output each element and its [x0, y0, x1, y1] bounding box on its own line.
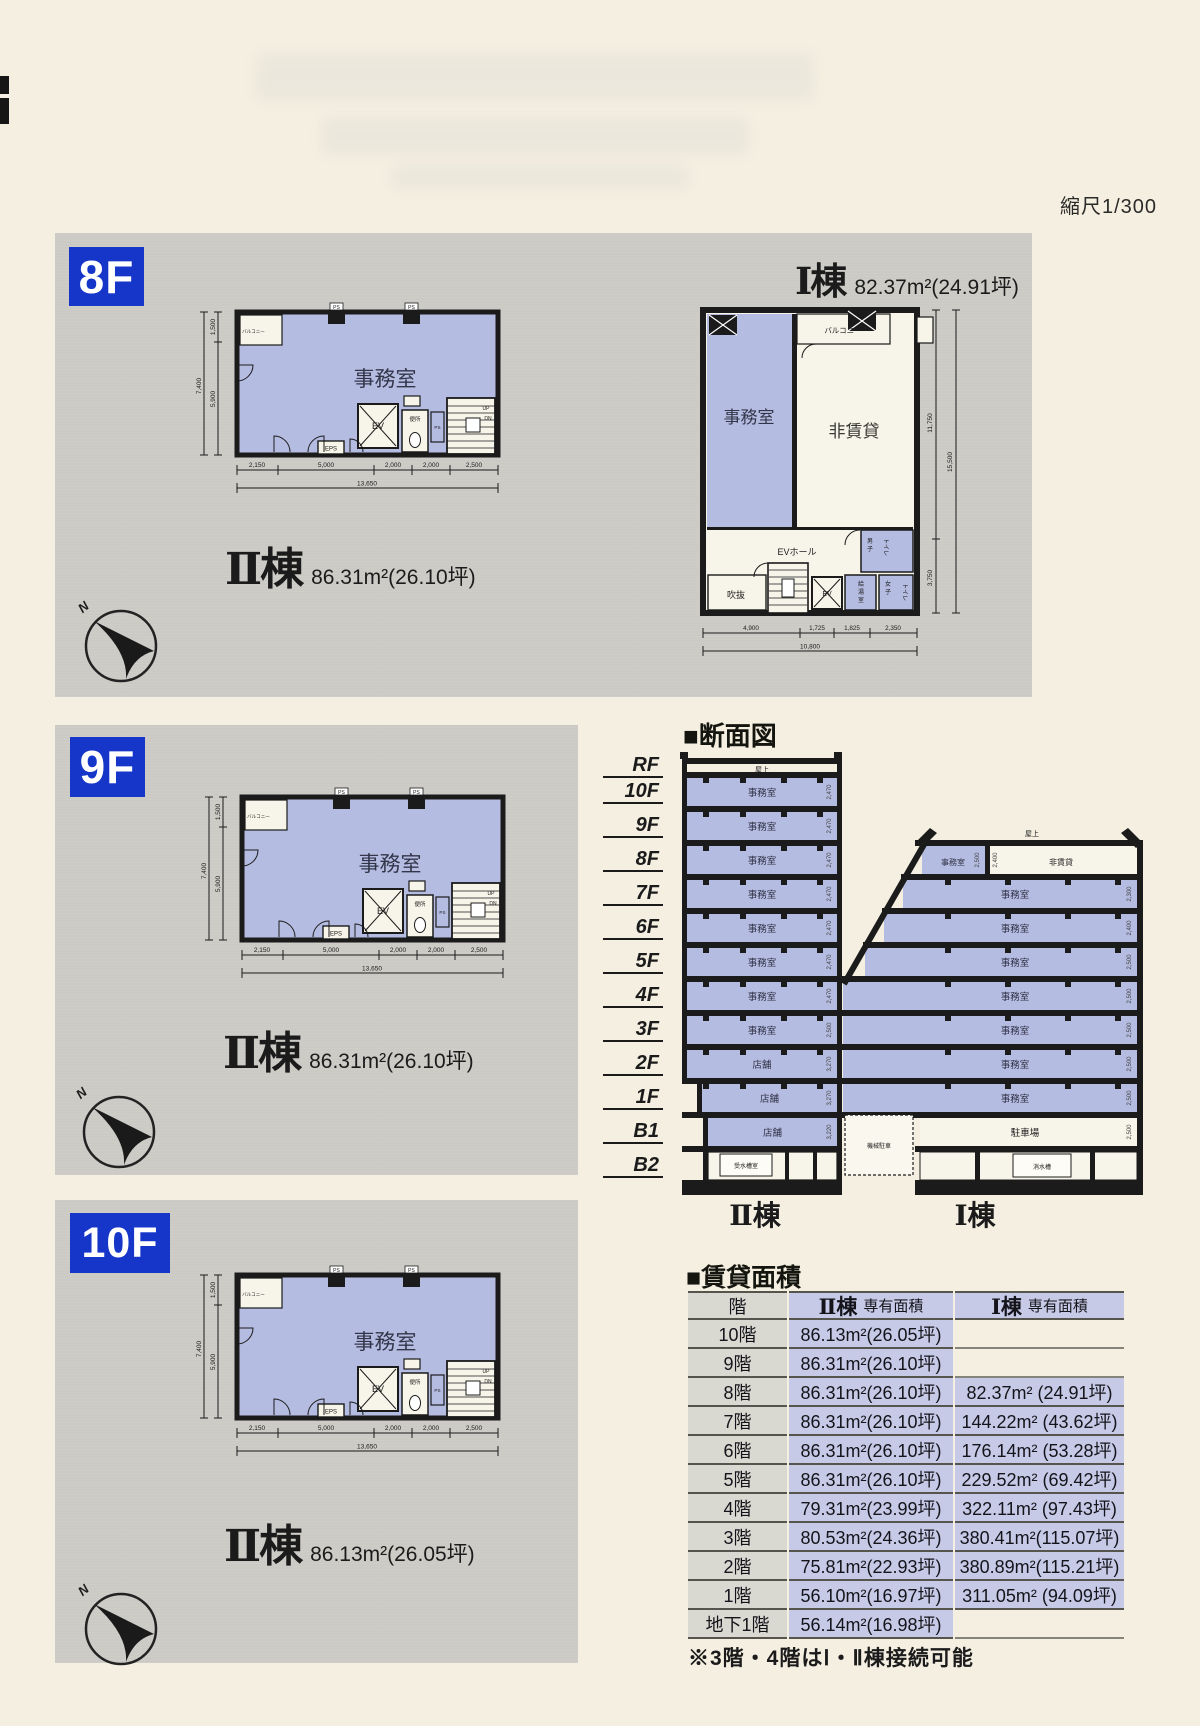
section-floor-label: 2F — [635, 1052, 660, 1074]
building2-caption-9f: Ⅱ棟 86.31m²(26.10坪) — [223, 1017, 474, 1081]
row-floor: 7階 — [688, 1407, 787, 1436]
section-floor-label: 5F — [636, 950, 660, 972]
row-building2-area: 86.13m²(26.05坪) — [789, 1320, 953, 1349]
floor-height: 3,220 — [827, 1124, 833, 1140]
room-label: 事務室 — [1001, 923, 1030, 935]
room-label: 非賃貸 — [1049, 857, 1073, 867]
toilet-label: 便所 — [409, 415, 421, 423]
section-floor-label: B1 — [633, 1120, 659, 1142]
dim-v-upper: 1,500 — [215, 803, 222, 820]
floor-height: 2,470 — [827, 784, 833, 800]
row-building2-area: 86.31m²(26.10坪) — [789, 1349, 953, 1378]
room-label: 店舗 — [763, 1127, 783, 1139]
ev-hall-label: EVホール — [777, 547, 816, 557]
row-floor: 9階 — [688, 1349, 787, 1378]
north-label: N — [75, 598, 92, 616]
floor-height: 2,400 — [1127, 920, 1133, 936]
row-building2-area: 80.53m²(24.36坪) — [789, 1523, 953, 1552]
womens-toilet-label: トイレ — [901, 583, 907, 601]
room-label: 事務室 — [748, 889, 777, 901]
dim-v-total: 7,400 — [201, 862, 208, 879]
row-building2-area: 75.81m²(22.93坪) — [789, 1552, 953, 1581]
building2-plan-9f: バルコニーPSPS事務室EV便所PSUPDNEPS7,4001,5005,900… — [195, 787, 515, 992]
mens-toilet-label: トイレ — [882, 538, 888, 556]
floor-height: 2,500 — [1127, 1090, 1133, 1106]
section-floor-label: 1F — [636, 1086, 660, 1108]
rent-table-row: 7階 86.31m²(26.10坪) 144.22m² (43.62坪) — [688, 1407, 1124, 1436]
rent-table-row: 9階 86.31m²(26.10坪) — [688, 1349, 1124, 1378]
row-floor: 3階 — [688, 1523, 787, 1552]
row-building1-area: 380.41m²(115.07坪) — [955, 1523, 1124, 1552]
room-label: 事務室 — [1001, 889, 1030, 901]
ps-label: PS — [333, 305, 340, 311]
section-floor-label: 9F — [636, 814, 660, 836]
room-label: 事務室 — [748, 821, 777, 833]
svg-text:子: 子 — [885, 589, 891, 596]
dim-h: 2,000 — [428, 947, 445, 954]
up-label: UP — [488, 891, 496, 897]
building-name: Ⅱ棟 — [225, 533, 302, 597]
cross-section-svg: 事務室2,470事務室2,470事務室2,470事務室2,470事務室2,470… — [585, 745, 1165, 1245]
row-floor: 2階 — [688, 1552, 787, 1581]
dim-h: 2,500 — [466, 462, 483, 469]
north-label: N — [73, 1084, 90, 1102]
print-bleedthrough — [320, 116, 750, 156]
ev-label: EV — [822, 591, 832, 598]
building2-plan-8f: バルコニーPSPS事務室EV便所PSUPDNEPS7,4001,5005,900… — [190, 302, 510, 507]
office-label: 事務室 — [724, 408, 775, 427]
floor-height: 2,500 — [1127, 1124, 1133, 1140]
dim-h: 2,150 — [249, 1425, 266, 1432]
machine-parking-label: 機械駐車 — [867, 1142, 891, 1150]
up-label: UP — [483, 1369, 491, 1375]
floor-tag-9f: 9F — [70, 737, 145, 797]
row-building1-area — [955, 1610, 1124, 1639]
building2-floor-plan: バルコニーPSPS事務室EV便所PSUPDNEPS7,4001,5005,900… — [190, 302, 510, 502]
floor-height: 2,300 — [1127, 886, 1133, 902]
floor-height: 2,470 — [827, 988, 833, 1004]
rent-table-row: 8階 86.31m²(26.10坪) 82.37m² (24.91坪) — [688, 1378, 1124, 1407]
cross-section-diagram: 事務室2,470事務室2,470事務室2,470事務室2,470事務室2,470… — [585, 745, 1165, 1245]
floor-height: 2,470 — [827, 818, 833, 834]
row-floor: 地下1階 — [688, 1610, 787, 1639]
row-floor: 5階 — [688, 1465, 787, 1494]
rent-table-row: 5階 86.31m²(26.10坪) 229.52m² (69.42坪) — [688, 1465, 1124, 1494]
rent-area-table: 階 Ⅱ棟専有面積 Ⅰ棟専有面積 10階 86.13m²(26.05坪) 9階 8… — [688, 1291, 1124, 1639]
row-floor: 8階 — [688, 1378, 787, 1407]
dim-h: 2,350 — [885, 625, 901, 632]
room-label: 事務室 — [1001, 991, 1030, 1003]
rent-table-row: 10階 86.13m²(26.05坪) — [688, 1320, 1124, 1349]
dim-h: 2,150 — [254, 947, 271, 954]
office-label: 事務室 — [354, 368, 417, 391]
row-building1-area: 229.52m² (69.42坪) — [955, 1465, 1124, 1494]
section-floor-label: 10F — [625, 780, 660, 802]
dim-h-total: 13,650 — [357, 1444, 377, 1451]
room-label: 事務室 — [1001, 957, 1030, 969]
building2-plan-10f: バルコニーPSPS事務室EV便所PSUPDNEPS7,4001,5005,900… — [190, 1265, 510, 1470]
up-label: UP — [483, 406, 491, 412]
balcony-label: バルコニー — [824, 326, 861, 335]
dim-h: 5,000 — [318, 462, 335, 469]
north-compass: N — [75, 595, 163, 689]
ps-label: PS — [333, 1268, 340, 1274]
row-floor: 10階 — [688, 1320, 787, 1349]
non-rental-label: 非賃貸 — [829, 422, 880, 441]
dim-v-upper: 1,500 — [210, 318, 217, 335]
rooftop-label: 屋上 — [755, 765, 769, 774]
balcony-label: バルコニー — [242, 1292, 265, 1297]
dim-v-total: 15,500 — [947, 452, 954, 472]
room-label: 店舗 — [752, 1059, 772, 1071]
floor-height: 2,470 — [827, 852, 833, 868]
section-floor-label: 6F — [636, 916, 660, 938]
ps-label: PS — [439, 910, 445, 915]
dim-v-total: 7,400 — [196, 1340, 203, 1357]
dim-v-lower: 5,900 — [210, 390, 217, 407]
dim-v-upper: 11,750 — [927, 413, 934, 433]
rent-table-row: 地下1階 56.14m²(16.98坪) — [688, 1610, 1124, 1639]
room-label: 事務室 — [748, 957, 777, 969]
balcony-label: バルコニー — [242, 329, 265, 334]
floor-panel-10f: 10F バルコニーPSPS事務室EV便所PSUPDNEPS7,4001,5005… — [55, 1200, 578, 1663]
ev-label: EV — [377, 906, 389, 916]
compass-9f: N — [73, 1081, 161, 1180]
dim-h: 1,725 — [809, 625, 825, 632]
dim-h: 2,150 — [249, 462, 266, 469]
row-building1-area: 176.14m² (53.28坪) — [955, 1436, 1124, 1465]
row-building2-area: 56.10m²(16.97坪) — [789, 1581, 953, 1610]
dim-h-total: 13,650 — [362, 966, 382, 973]
balcony-label: バルコニー — [247, 814, 270, 819]
ps-label: PS — [408, 305, 415, 311]
ev-label: EV — [372, 421, 384, 431]
toilet-label: 便所 — [414, 900, 426, 908]
eps-label: EPS — [330, 932, 342, 938]
room-label: 事務室 — [748, 787, 777, 799]
dn-label: DN — [484, 416, 492, 422]
row-building2-area: 79.31m²(23.99坪) — [789, 1494, 953, 1523]
ps-label: PS — [434, 425, 440, 430]
room-label: 事務室 — [748, 923, 777, 935]
ps-label: PS — [434, 1388, 440, 1393]
room-label: 事務室 — [748, 991, 777, 1003]
rent-table-row: 6階 86.31m²(26.10坪) 176.14m² (53.28坪) — [688, 1436, 1124, 1465]
building2-floor-plan: バルコニーPSPS事務室EV便所PSUPDNEPS7,4001,5005,900… — [190, 1265, 510, 1465]
floor-height: 2,500 — [1127, 954, 1133, 970]
row-floor: 6階 — [688, 1436, 787, 1465]
svg-text:男: 男 — [867, 538, 873, 545]
row-building1-area: 322.11m² (97.43坪) — [955, 1494, 1124, 1523]
compass-8f: N — [75, 595, 163, 694]
rent-table-row: 4階 79.31m²(23.99坪) 322.11m² (97.43坪) — [688, 1494, 1124, 1523]
room-label: 事務室 — [1001, 1059, 1030, 1071]
floor-tag-8f: 8F — [69, 247, 144, 306]
dim-h-total: 13,650 — [357, 481, 377, 488]
dn-label: DN — [489, 901, 497, 907]
floor-height: 2,500 — [1127, 1056, 1133, 1072]
rooftop-label: 屋上 — [1025, 829, 1039, 838]
dim-h: 2,000 — [385, 462, 402, 469]
floor-height: 3,270 — [827, 1056, 833, 1072]
floor-height: 3,270 — [827, 1090, 833, 1106]
row-building1-area: 311.05m² (94.09坪) — [955, 1581, 1124, 1610]
section-floor-label: 4F — [635, 984, 660, 1006]
row-floor: 4階 — [688, 1494, 787, 1523]
rent-table-row: 1階 56.10m²(16.97坪) 311.05m² (94.09坪) — [688, 1581, 1124, 1610]
floor-height: 2,500 — [1127, 988, 1133, 1004]
section-floor-label: B2 — [633, 1154, 659, 1176]
row-building1-area: 82.37m² (24.91坪) — [955, 1378, 1124, 1407]
room-label: 受水槽室 — [734, 1162, 758, 1170]
building2-label: Ⅱ棟 — [729, 1199, 782, 1232]
building2-caption-10f: Ⅱ棟 86.13m²(26.05坪) — [224, 1510, 475, 1574]
row-building2-area: 86.31m²(26.10坪) — [789, 1407, 953, 1436]
north-compass: N — [75, 1578, 163, 1672]
floor-panel-8f: 8F バルコニーPSPS事務室EV便所PSUPDNEPS7,4001,5005,… — [55, 233, 1032, 697]
rent-table-row: 2階 75.81m²(22.93坪) 380.89m²(115.21坪) — [688, 1552, 1124, 1581]
svg-text:湯: 湯 — [858, 588, 864, 596]
page-edge-mark — [0, 98, 9, 124]
dim-h: 2,500 — [466, 1425, 483, 1432]
row-building2-area: 86.31m²(26.10坪) — [789, 1378, 953, 1407]
page-edge-mark — [0, 76, 9, 94]
dim-v-lower: 3,750 — [927, 569, 934, 586]
dim-v-lower: 5,900 — [215, 875, 222, 892]
dim-v-upper: 1,500 — [210, 1281, 217, 1298]
floor-height: 2,470 — [827, 920, 833, 936]
section-floor-label: 3F — [636, 1018, 660, 1040]
section-floor-label: 8F — [636, 848, 660, 870]
room-label: 消水槽 — [1033, 1163, 1051, 1171]
svg-text:子: 子 — [867, 546, 873, 553]
building1-floor-plan: バルコニー事務室非賃貸男子トイレEVホール吹抜EV給湯室女子トイレ11,7503… — [630, 295, 990, 665]
dim-h: 2,000 — [385, 1425, 402, 1432]
room-label: 事務室 — [941, 857, 965, 867]
room-label: 事務室 — [1001, 1093, 1030, 1105]
building2-caption-8f: Ⅱ棟 86.31m²(26.10坪) — [225, 533, 476, 597]
building1-plan-8f: バルコニー事務室非賃貸男子トイレEVホール吹抜EV給湯室女子トイレ11,7503… — [630, 295, 990, 670]
building2-floor-plan: バルコニーPSPS事務室EV便所PSUPDNEPS7,4001,5005,900… — [195, 787, 515, 987]
room-label: 店舗 — [760, 1093, 780, 1105]
ps-label: PS — [408, 1268, 415, 1274]
row-building1-area: 144.22m² (43.62坪) — [955, 1407, 1124, 1436]
rent-table-header: 階 Ⅱ棟専有面積 Ⅰ棟専有面積 — [688, 1291, 1124, 1320]
col-floor: 階 — [688, 1291, 787, 1320]
floor-panel-9f: 9F バルコニーPSPS事務室EV便所PSUPDNEPS7,4001,5005,… — [55, 725, 578, 1175]
room-label: 事務室 — [748, 1025, 777, 1037]
row-building2-area: 86.31m²(26.10坪) — [789, 1465, 953, 1494]
room-label: 事務室 — [1001, 1025, 1030, 1037]
floor-height: 2,500 — [1127, 1022, 1133, 1038]
dn-label: DN — [484, 1379, 492, 1385]
building-area: 86.31m²(26.10坪) — [311, 561, 476, 591]
svg-text:室: 室 — [858, 596, 864, 604]
col-building1: Ⅰ棟専有面積 — [955, 1291, 1124, 1320]
dim-h: 2,000 — [423, 462, 440, 469]
building1-label: Ⅰ棟 — [954, 1199, 996, 1232]
row-building1-area — [955, 1349, 1124, 1378]
dim-h: 2,000 — [390, 947, 407, 954]
brochure-page: 縮尺1/300 8F バルコニーPSPS事務室EV便所PSUPDNEPS7,40… — [0, 0, 1200, 1726]
north-compass: N — [73, 1081, 161, 1175]
dim-h: 4,900 — [743, 625, 759, 632]
ps-label: PS — [413, 790, 420, 796]
section-floor-label: RF — [632, 754, 659, 776]
rent-area-title: ■賃貸面積 — [686, 1258, 801, 1294]
col-building2: Ⅱ棟専有面積 — [789, 1291, 953, 1320]
dim-v-lower: 5,900 — [210, 1353, 217, 1370]
dim-h-total: 10,800 — [800, 644, 820, 651]
row-floor: 1階 — [688, 1581, 787, 1610]
dim-v-total: 7,400 — [196, 377, 203, 394]
section-floor-label: 7F — [636, 882, 660, 904]
eps-label: EPS — [325, 447, 337, 453]
office-label: 事務室 — [354, 1331, 417, 1354]
dim-h: 5,000 — [323, 947, 340, 954]
eps-label: EPS — [325, 1410, 337, 1416]
floor-height: 2,400 — [993, 852, 999, 868]
ps-label: PS — [338, 790, 345, 796]
dim-h: 5,000 — [318, 1425, 335, 1432]
svg-text:女: 女 — [885, 580, 891, 588]
office-label: 事務室 — [359, 853, 422, 876]
dim-h: 2,000 — [423, 1425, 440, 1432]
room-label: 事務室 — [748, 855, 777, 867]
building-name: Ⅱ棟 — [224, 1510, 301, 1574]
compass-10f: N — [75, 1578, 163, 1677]
north-label: N — [75, 1581, 92, 1599]
scale-note: 縮尺1/300 — [1060, 190, 1157, 219]
svg-text:給: 給 — [858, 580, 864, 588]
toilet-label: 便所 — [409, 1378, 421, 1386]
floor-tag-10f: 10F — [70, 1213, 170, 1273]
row-building1-area — [955, 1320, 1124, 1349]
ev-label: EV — [372, 1384, 384, 1394]
building-name: Ⅱ棟 — [223, 1017, 300, 1081]
rent-table-note: ※3階・4階はⅠ・Ⅱ棟接続可能 — [688, 1642, 974, 1672]
floor-height: 2,500 — [975, 852, 981, 868]
row-building2-area: 56.14m²(16.98坪) — [789, 1610, 953, 1639]
floor-height: 2,470 — [827, 886, 833, 902]
floor-height: 2,470 — [827, 954, 833, 970]
building-area: 86.13m²(26.05坪) — [310, 1538, 475, 1568]
floor-height: 2,500 — [827, 1022, 833, 1038]
void-label: 吹抜 — [727, 589, 745, 600]
dim-h: 1,825 — [844, 625, 860, 632]
building-area: 86.31m²(26.10坪) — [309, 1045, 474, 1075]
room-label: 駐車場 — [1011, 1127, 1040, 1139]
print-bleedthrough — [255, 52, 815, 102]
row-building2-area: 86.31m²(26.10坪) — [789, 1436, 953, 1465]
dim-h: 2,500 — [471, 947, 488, 954]
print-bleedthrough — [390, 164, 690, 190]
row-building1-area: 380.89m²(115.21坪) — [955, 1552, 1124, 1581]
rent-table-row: 3階 80.53m²(24.36坪) 380.41m²(115.07坪) — [688, 1523, 1124, 1552]
